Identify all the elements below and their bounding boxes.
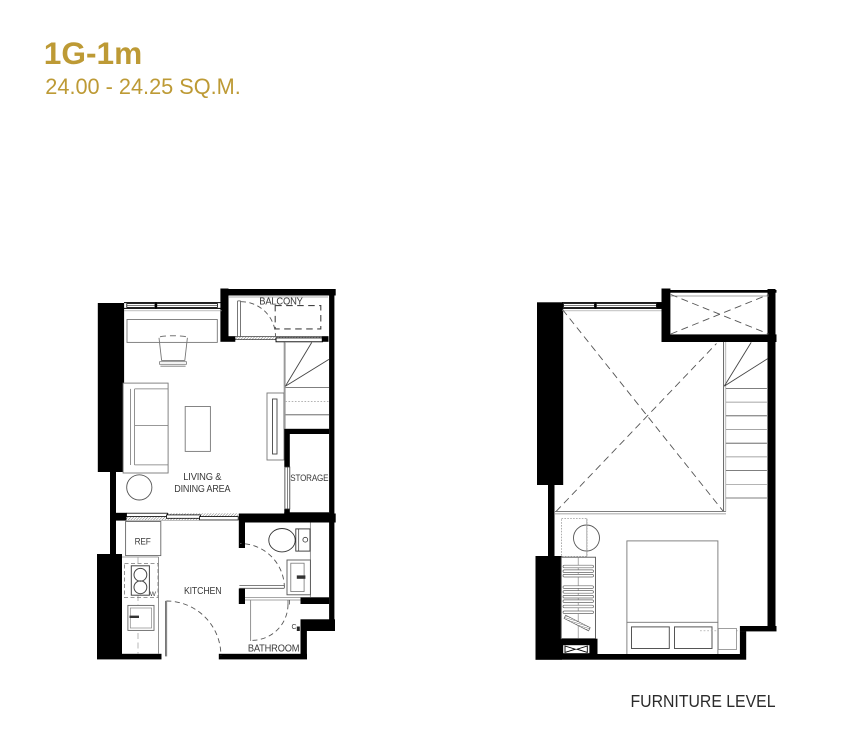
svg-text:BALCONY: BALCONY	[259, 297, 303, 308]
svg-text:REF: REF	[135, 537, 151, 548]
svg-text:KITCHEN: KITCHEN	[184, 586, 222, 597]
svg-text:FURNITURE LEVEL: FURNITURE LEVEL	[631, 691, 776, 711]
svg-text:LIVING &: LIVING &	[183, 472, 221, 483]
svg-text:C: C	[292, 624, 297, 631]
svg-text:1G-1m: 1G-1m	[44, 35, 143, 71]
svg-text:STORAGE: STORAGE	[290, 473, 328, 483]
svg-text:24.00 - 24.25 SQ.M.: 24.00 - 24.25 SQ.M.	[45, 74, 241, 99]
svg-text:BATHROOM: BATHROOM	[248, 643, 300, 654]
svg-text:DINING AREA: DINING AREA	[174, 484, 230, 495]
